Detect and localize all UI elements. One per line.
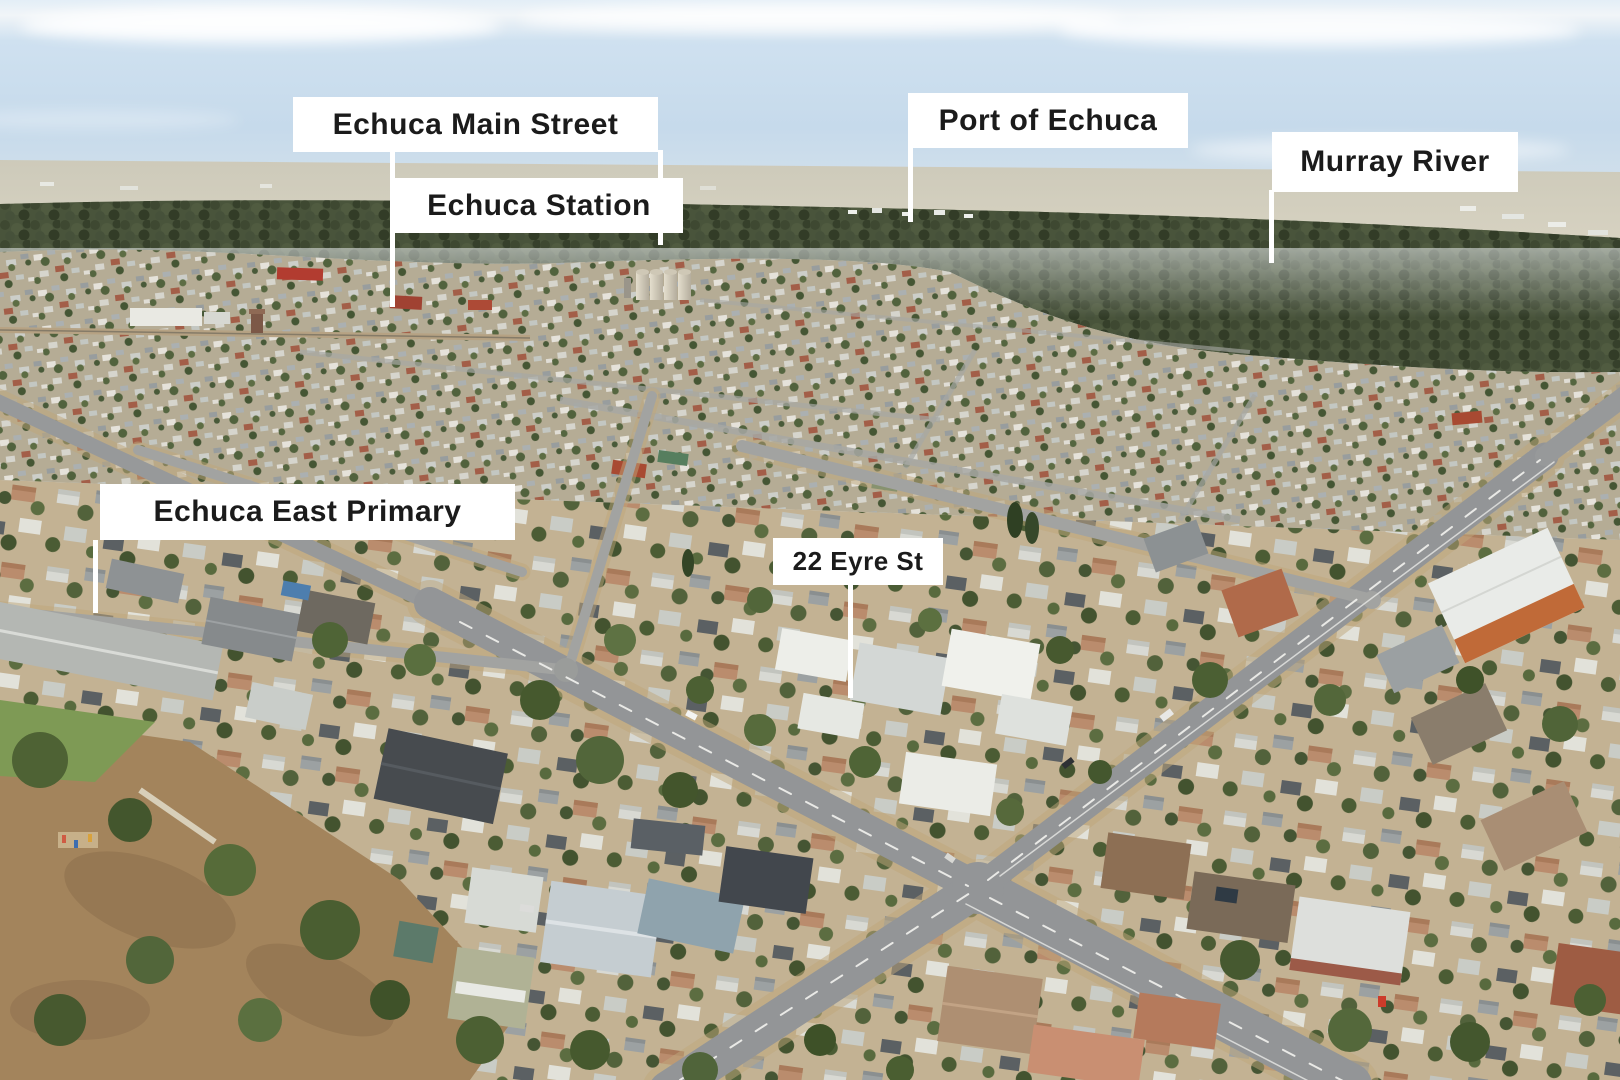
- label-echuca-station: Echuca Station: [395, 178, 683, 233]
- label-port-of-echuca-text: Port of Echuca: [939, 104, 1158, 138]
- label-echuca-east-primary: Echuca East Primary: [100, 484, 515, 540]
- label-22-eyre-st: 22 Eyre St: [773, 538, 943, 585]
- label-echuca-station-text: Echuca Station: [427, 189, 651, 223]
- label-murray-river-text: Murray River: [1300, 145, 1489, 179]
- pointer-line-22-eyre-st: [848, 583, 853, 698]
- label-echuca-main-street: Echuca Main Street: [293, 97, 658, 152]
- label-echuca-east-primary-text: Echuca East Primary: [154, 495, 462, 529]
- playground-equipment: [58, 832, 98, 848]
- aerial-photo: Echuca Main Street Echuca Station Port o…: [0, 0, 1620, 1080]
- label-echuca-main-street-text: Echuca Main Street: [333, 108, 619, 142]
- label-murray-river: Murray River: [1272, 132, 1518, 192]
- label-22-eyre-st-text: 22 Eyre St: [793, 546, 924, 577]
- label-port-of-echuca: Port of Echuca: [908, 93, 1188, 148]
- pointer-line-murray-river: [1269, 190, 1274, 263]
- pointer-line-port-of-echuca: [908, 146, 913, 222]
- pointer-line-echuca-east-primary: [93, 540, 98, 613]
- water-tower: [251, 311, 263, 333]
